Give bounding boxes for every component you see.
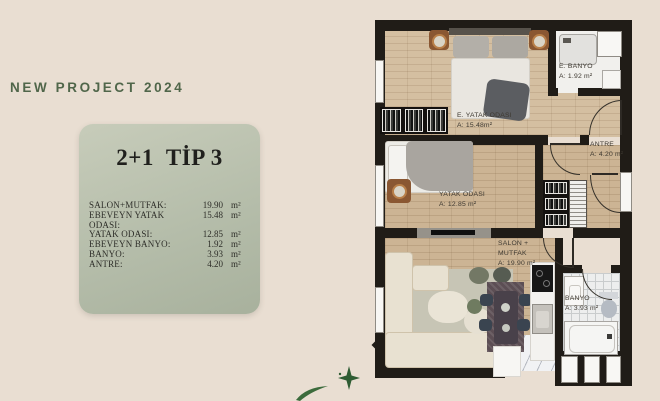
single-bed-duvet: [406, 141, 473, 191]
wall-segment: [578, 88, 632, 96]
pouf: [493, 267, 511, 283]
leaf-sparkle-icon: [292, 366, 378, 401]
lamp-icon: [392, 184, 407, 199]
wall-segment: [548, 29, 556, 96]
wall-segment: [611, 265, 632, 273]
bathroom-sink: [602, 70, 621, 89]
master-bed-headboard: [449, 28, 531, 35]
master-wardrobe: [380, 107, 448, 134]
wall-segment: [622, 135, 632, 145]
room-label-master-bedroom: E. YATAK ODASI A: 15.48m²: [457, 111, 512, 131]
linen-shelf: [569, 180, 587, 228]
pouf: [469, 267, 489, 284]
wall-segment: [573, 228, 632, 238]
window: [606, 356, 621, 383]
room-label-bedroom: YATAK ODASI A: 12.85 m²: [439, 190, 485, 210]
area-row: ANTRE:4.20m²: [89, 260, 248, 270]
project-heading: NEW PROJECT 2024: [10, 80, 184, 95]
door-leaf: [592, 173, 618, 175]
pillow: [453, 36, 489, 58]
pillow: [492, 36, 528, 58]
room-label-living-kitchen: SALON + MUTFAK A: 19.90 m²: [498, 239, 535, 269]
marketing-sheet: NEW PROJECT 2024 2+1 TİP 3 SALON+MUTFAK:…: [0, 0, 660, 401]
window: [375, 287, 384, 333]
window: [584, 356, 600, 383]
cooktop: [532, 265, 553, 292]
dining-chair: [479, 319, 492, 331]
bathtub-drain: [607, 334, 612, 339]
wall-segment: [580, 135, 589, 145]
door-leaf: [620, 100, 622, 135]
door-leaf: [572, 238, 574, 268]
area-list: SALON+MUTFAK:19.90m² EBEVEYN YATAK ODASI…: [89, 201, 248, 270]
dining-chair: [480, 294, 493, 306]
burner: [543, 280, 550, 287]
wardrobe-section: [545, 214, 567, 226]
wall-segment: [548, 88, 558, 96]
area-row: EBEVEYN YATAK ODASI:15.48m²: [89, 211, 248, 231]
place-setting: [501, 303, 510, 312]
tv: [431, 230, 475, 235]
dining-table: [494, 291, 518, 344]
door-leaf: [550, 143, 580, 145]
nightstand: [529, 30, 549, 50]
kitchen-sink: [532, 304, 553, 334]
window: [561, 356, 578, 383]
wardrobe-section: [427, 109, 446, 132]
sink-basin: [536, 311, 549, 328]
coffee-table: [428, 291, 468, 323]
nightstand: [387, 179, 411, 203]
dining-chair: [517, 319, 530, 331]
wardrobe-section: [405, 109, 424, 132]
shower-tray: [559, 34, 597, 65]
unit-info-card: 2+1 TİP 3 SALON+MUTFAK:19.90m² EBEVEYN Y…: [79, 124, 260, 314]
wardrobe-section: [545, 198, 567, 210]
bathtub-basin: [569, 325, 615, 353]
hallway-wardrobe: [543, 180, 569, 228]
nightstand: [429, 30, 449, 50]
room-label-hallway: ANTRE A: 4.20 m²: [590, 140, 623, 160]
floor-plan: E. YATAK ODASI A: 15.48m² E. BANYO A: 1.…: [373, 15, 635, 390]
shaft-niche: [597, 31, 622, 57]
fridge: [493, 346, 521, 377]
room-label-master-bathroom: E. BANYO A: 1.92 m²: [559, 62, 593, 82]
window: [375, 165, 384, 227]
toilet-bowl: [601, 300, 617, 318]
wall-segment: [535, 135, 543, 238]
window: [375, 60, 384, 103]
room-label-bathroom: BANYO A: 3.93 m²: [565, 294, 598, 314]
bathtub: [564, 321, 618, 355]
burner: [536, 270, 543, 277]
lamp-icon: [532, 34, 547, 49]
entry-door-opening: [620, 172, 632, 212]
place-setting: [502, 324, 510, 332]
wardrobe-section: [382, 109, 401, 132]
sofa-chaise: [412, 265, 449, 291]
pillow: [388, 145, 408, 183]
shower-drain: [563, 38, 571, 43]
lamp-icon: [432, 34, 447, 49]
wardrobe-section: [545, 182, 567, 194]
unit-type-title: 2+1 TİP 3: [79, 145, 260, 171]
